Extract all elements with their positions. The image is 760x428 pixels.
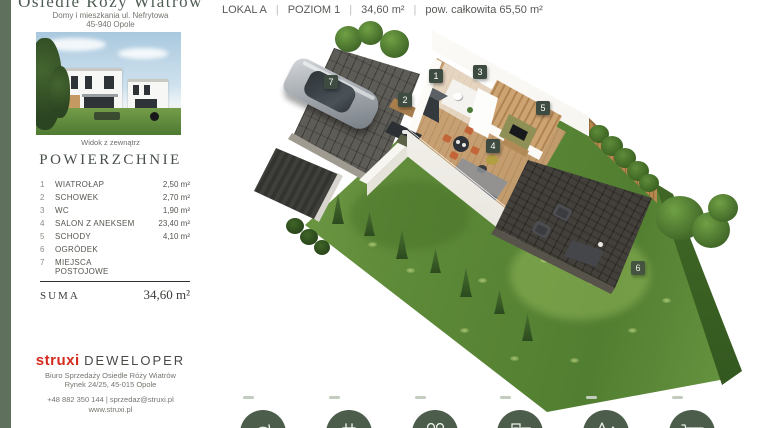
- website-link[interactable]: www.struxi.pl: [11, 405, 210, 415]
- photo-roof: [128, 79, 168, 82]
- room-list: 1 WIATROŁAP 2,50 m² 2 SCHOWEK 2,70 m² 3 …: [40, 180, 190, 271]
- sidebar: Osiedle Róży Wiatrów Domy i mieszkania u…: [11, 0, 210, 428]
- plan-header: LOKAL A | POZIOM 1 | 34,60 m² | pow. cał…: [222, 4, 543, 16]
- icon-tick: [243, 396, 254, 399]
- room-row: 5 SCHODY 4,10 m²: [40, 232, 190, 245]
- photo-tree: [50, 66, 70, 118]
- plate: [462, 143, 466, 147]
- room-area: 2,70 m²: [144, 193, 190, 202]
- grass-tuft: [628, 328, 637, 333]
- plan-marker-4[interactable]: 4: [486, 139, 500, 153]
- photo-window: [71, 76, 78, 89]
- office-line-1: Biuro Sprzedaży Osiedle Róży Wiatrów: [11, 371, 210, 380]
- floor-plan-3d: 1 2 3 4 5 6 7: [210, 30, 760, 428]
- plan-marker-2[interactable]: 2: [398, 93, 412, 107]
- header-separator: |: [414, 4, 417, 16]
- subtitle-line-2: 45-940 Opole: [11, 20, 210, 29]
- photo-cloud: [118, 48, 168, 59]
- room-row: 2 SCHOWEK 2,70 m²: [40, 193, 190, 206]
- plan-marker-7[interactable]: 7: [324, 75, 338, 89]
- photo-house-left: [64, 68, 122, 112]
- room-area: 4,10 m²: [144, 232, 190, 241]
- icon-tick: [329, 396, 340, 399]
- plate: [456, 140, 460, 144]
- photo-window: [144, 85, 150, 95]
- plan-marker-5[interactable]: 5: [536, 101, 550, 115]
- plan-marker-1[interactable]: 1: [429, 69, 443, 83]
- toilet: [453, 93, 462, 100]
- office-address: Biuro Sprzedaży Osiedle Róży Wiatrów Ryn…: [11, 371, 210, 389]
- accent-strip: [0, 0, 11, 428]
- photo-caption: Widok z zewnątrz: [11, 138, 210, 147]
- header-lokal: LOKAL A: [222, 4, 267, 16]
- room-name: WIATROŁAP: [55, 180, 144, 189]
- icon-tick: [586, 396, 597, 399]
- suma-label: SUMA: [40, 290, 143, 302]
- room-number: 1: [40, 180, 55, 189]
- outdoor-lamp: [598, 242, 603, 247]
- park-icon[interactable]: [583, 410, 629, 428]
- room-name: WC: [55, 206, 144, 215]
- plan-marker-3[interactable]: 3: [473, 65, 487, 79]
- room-name: SCHODY: [55, 232, 144, 241]
- fence-hedge: [639, 174, 659, 192]
- recycle-icon[interactable]: [240, 410, 286, 428]
- icon-tick: [672, 396, 683, 399]
- room-number: 5: [40, 232, 55, 241]
- photo-awning: [82, 94, 118, 97]
- family-icon[interactable]: [412, 410, 458, 428]
- header-separator: |: [276, 4, 279, 16]
- buildings-icon[interactable]: [497, 410, 543, 428]
- header-total-area: pow. całkowita 65,50 m²: [425, 4, 542, 16]
- plan-marker-6[interactable]: 6: [631, 261, 645, 275]
- grass-tuft: [368, 242, 377, 247]
- room-number: 4: [40, 219, 55, 228]
- room-area: 2,50 m²: [144, 180, 190, 189]
- room-number: 6: [40, 245, 55, 254]
- header-separator: |: [349, 4, 352, 16]
- grass-tuft: [510, 356, 519, 361]
- grass-tuft: [478, 278, 487, 283]
- room-number: 2: [40, 193, 55, 202]
- logo-deweloper: DEWELOPER: [84, 353, 185, 368]
- exterior-photo: [36, 32, 181, 135]
- photo-grill: [150, 112, 159, 121]
- room-name: SALON Z ANEKSEM: [55, 219, 144, 228]
- room-number: 7: [40, 258, 55, 267]
- photo-window: [133, 85, 139, 95]
- room-row: 3 WC 1,90 m²: [40, 206, 190, 219]
- contact-line: +48 882 350 144 | sprzedaz@struxi.pl: [11, 395, 210, 405]
- room-name: SCHOWEK: [55, 193, 144, 202]
- estate-subtitle: Domy i mieszkania ul. Nefrytowa 45-940 O…: [11, 11, 210, 29]
- room-row: 6 OGRÓDEK: [40, 245, 190, 258]
- grass-tuft: [460, 328, 469, 333]
- room-area: 1,90 m²: [144, 206, 190, 215]
- photo-house-right: [128, 79, 168, 111]
- subtitle-line-1: Domy i mieszkania ul. Nefrytowa: [11, 11, 210, 20]
- suma-value: 34,60 m²: [143, 287, 190, 303]
- indoor-plant: [467, 107, 473, 113]
- room-name: OGRÓDEK: [55, 245, 144, 254]
- developer-logo: struxi DEWELOPER: [11, 352, 210, 370]
- suma-row: SUMA 34,60 m²: [40, 287, 190, 303]
- driveway-bush: [380, 30, 409, 58]
- logo-struxi: struxi: [36, 352, 80, 369]
- office-line-2: Rynek 24/25, 45-015 Opole: [11, 380, 210, 389]
- room-row: 1 WIATROŁAP 2,50 m²: [40, 180, 190, 193]
- room-area: 23,40 m²: [144, 219, 190, 228]
- suma-divider: [40, 281, 190, 282]
- photo-window: [85, 76, 92, 89]
- photo-roof: [64, 68, 122, 71]
- icon-tick: [415, 396, 426, 399]
- photo-dining-set: [94, 112, 120, 120]
- dining-table: [453, 136, 469, 152]
- ev-charger-icon[interactable]: [326, 410, 372, 428]
- grass-tuft: [406, 268, 415, 273]
- photo-window: [104, 76, 114, 89]
- grass-tuft: [662, 298, 671, 303]
- garden-bush: [708, 194, 738, 222]
- shed-hedge: [314, 240, 330, 255]
- room-name: MIEJSCA POSTOJOWE: [55, 258, 144, 276]
- icon-tick: [500, 396, 511, 399]
- grass-tuft: [570, 358, 579, 363]
- header-poziom: POZIOM 1: [288, 4, 341, 16]
- room-row: 4 SALON Z ANEKSEM 23,40 m²: [40, 219, 190, 232]
- side-table: [486, 155, 498, 165]
- areas-heading: POWIERZCHNIE: [11, 152, 210, 169]
- contact-block: +48 882 350 144 | sprzedaz@struxi.pl www…: [11, 395, 210, 414]
- room-number: 3: [40, 206, 55, 215]
- room-row: 7 MIEJSCA POSTOJOWE: [40, 258, 190, 271]
- header-area: 34,60 m²: [361, 4, 404, 16]
- shopping-cart-icon[interactable]: [669, 410, 715, 428]
